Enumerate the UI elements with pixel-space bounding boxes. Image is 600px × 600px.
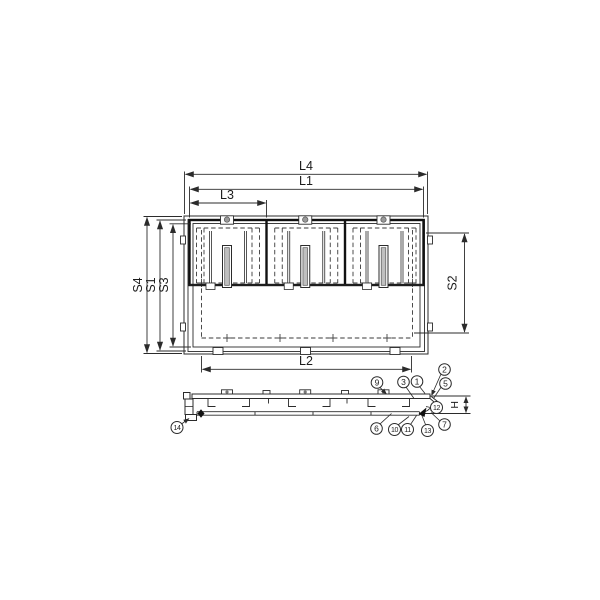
balloon-6: 6 <box>371 423 383 435</box>
balloon-7: 7 <box>439 419 451 431</box>
dimension-l2: L2 <box>202 354 412 372</box>
balloon-12: 12 <box>431 402 443 414</box>
dim-label-s2: S2 <box>446 275 460 290</box>
svg-text:5: 5 <box>443 379 448 389</box>
svg-text:3: 3 <box>401 377 406 387</box>
dim-label-l1: L1 <box>299 174 313 188</box>
dim-label-s4: S4 <box>131 277 145 292</box>
dim-label-s1: S1 <box>144 277 158 292</box>
svg-text:13: 13 <box>424 428 431 435</box>
svg-text:9: 9 <box>375 378 380 388</box>
svg-text:11: 11 <box>404 427 411 434</box>
dim-label-s3: S3 <box>157 277 171 292</box>
bottom-rail <box>197 409 420 417</box>
svg-text:6: 6 <box>374 424 379 434</box>
plan-view <box>181 216 433 355</box>
svg-text:10: 10 <box>391 427 398 434</box>
dim-label-l3: L3 <box>220 188 234 202</box>
technical-drawing: L4 L1 L3 L2 S4 <box>0 0 600 600</box>
under-plate-stiffeners <box>208 399 410 407</box>
balloon-9: 9 <box>371 377 383 389</box>
hinge-bumps <box>222 390 390 394</box>
dim-label-l2: L2 <box>299 354 313 368</box>
side-elevation-view <box>184 390 438 421</box>
svg-text:12: 12 <box>433 405 440 412</box>
dim-label-l4: L4 <box>299 159 313 173</box>
balloon-13: 13 <box>422 425 434 437</box>
dim-label-h: H <box>449 401 461 409</box>
svg-text:1: 1 <box>415 377 420 387</box>
cover-plate <box>192 394 430 399</box>
balloon-14: 14 <box>171 422 183 434</box>
balloon-11: 11 <box>402 424 414 436</box>
svg-text:2: 2 <box>442 365 447 375</box>
balloon-1: 1 <box>411 376 423 388</box>
svg-text:7: 7 <box>442 420 447 430</box>
dimension-l3: L3 <box>191 188 267 218</box>
anchor-bolt-icon <box>198 409 205 417</box>
balloon-5: 5 <box>440 378 452 390</box>
balloon-3: 3 <box>398 376 410 388</box>
balloon-10: 10 <box>389 424 401 436</box>
balloon-2: 2 <box>439 364 451 376</box>
svg-text:14: 14 <box>174 425 181 432</box>
